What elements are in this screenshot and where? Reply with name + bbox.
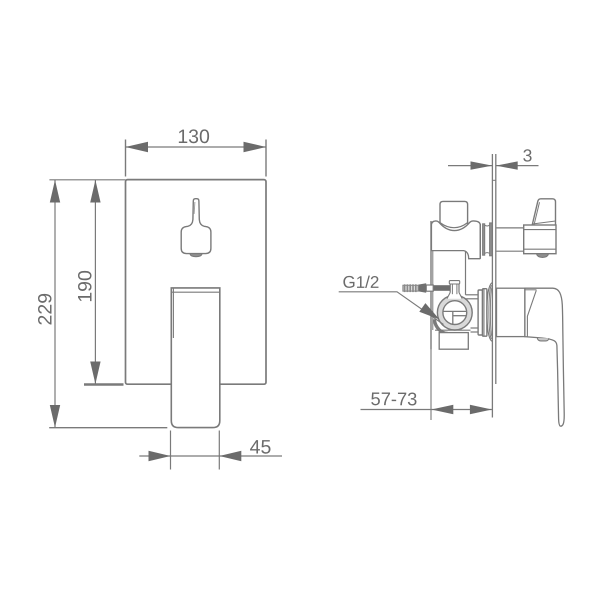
svg-text:190: 190 <box>74 270 96 303</box>
svg-text:57-73: 57-73 <box>371 388 418 409</box>
svg-text:229: 229 <box>34 293 56 326</box>
svg-text:G1/2: G1/2 <box>342 273 379 292</box>
svg-text:3: 3 <box>523 145 533 165</box>
svg-text:130: 130 <box>177 126 210 148</box>
svg-text:45: 45 <box>250 436 272 458</box>
